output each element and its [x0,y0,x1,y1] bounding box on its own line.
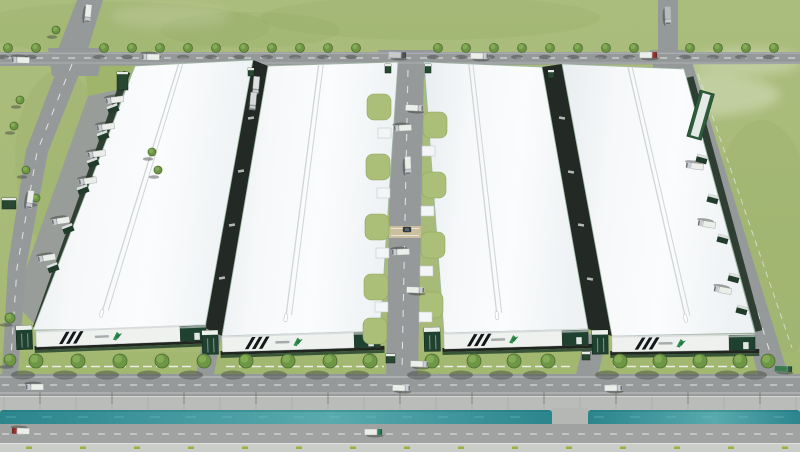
sidewalk-marking [80,447,86,450]
dock-pod [376,248,389,258]
truck-trailer [470,53,483,59]
tree-highlight [30,355,38,363]
tree-highlight [654,355,662,363]
tree-shadow [511,55,523,59]
sidewalk-marking [350,447,356,450]
dock-pod [419,312,432,322]
truck-trailer [85,4,92,17]
tree-highlight [268,44,273,49]
dock-pod [421,206,434,216]
tree-highlight [468,355,476,363]
truck-trailer [665,6,671,19]
tree-highlight [686,44,691,49]
tree-shadow [679,55,691,59]
tree-highlight [462,44,467,49]
truck-trailer [399,125,412,132]
truck-windshield [394,126,395,131]
tree-highlight [574,44,579,49]
tree-highlight [240,355,248,363]
booth-roof [117,72,128,74]
end-section-door [194,333,200,340]
truck [390,246,409,255]
tree-highlight [155,167,159,171]
tree-shadow [261,55,273,59]
guard-booth [386,354,395,363]
truck-trailer [31,384,44,390]
tree-highlight [23,167,27,171]
truck-windshield [427,362,428,367]
grass-island [367,94,391,120]
truck-trailer [392,385,405,391]
guard-booth [385,64,391,73]
tree-shadow [205,55,217,59]
tree-shadow [121,55,133,59]
tree-shadow [263,371,287,380]
canal-water [588,410,800,426]
tree-highlight [434,44,439,49]
truck-trailer [410,361,423,367]
tree-shadow [743,371,767,380]
tree-highlight [184,44,189,49]
truck [365,429,384,437]
truck-trailer [17,57,30,63]
warehouse-3-ridge-vent [495,311,499,319]
tower-mullion [603,338,604,352]
end-section-door [743,342,749,349]
guard-booth [2,198,16,209]
cloud-haze [110,4,230,28]
dock-pod [375,302,388,312]
tree-highlight [742,44,747,49]
tree-highlight [546,44,551,49]
sidewalk-marking [26,447,32,450]
tree-shadow [635,371,659,380]
industrial-park-aerial-view [0,0,800,452]
corner-tower-cap [424,327,440,332]
dock-pod [422,146,435,156]
truck-windshield [405,53,406,58]
truck-trailer [17,428,30,434]
truck-trailer [605,385,618,391]
tree-shadow [47,35,57,39]
tree-highlight [11,123,15,127]
dock-pod [377,188,390,198]
truck-windshield [421,106,422,111]
truck [140,51,159,60]
booth-roof [2,198,16,200]
truck-windshield [666,23,671,24]
tree-highlight [296,44,301,49]
tree-highlight [212,44,217,49]
tree-highlight [198,355,206,363]
guard-booth [248,68,254,76]
truck-windshield [487,54,488,59]
car [403,227,411,232]
tree-highlight [770,44,775,49]
tree-highlight [240,44,245,49]
aerial-render-canvas [0,0,800,452]
tree-highlight [156,355,164,363]
truck-windshield [142,54,143,59]
truck-windshield [392,250,393,255]
truck-windshield [12,428,13,433]
sidewalk-marking [782,447,788,450]
sidewalk-marking [566,447,572,450]
truck-trailer [405,156,411,169]
tree-shadow [595,55,607,59]
tree-shadow [289,55,301,59]
tree-shadow [177,55,189,59]
booth-roof [386,354,395,356]
truck-windshield [12,57,13,62]
tree-shadow [179,371,203,380]
tree-shadow [11,371,35,380]
tree-highlight [324,355,332,363]
booth-roof [548,70,554,72]
tree-shadow [149,175,159,179]
truck-windshield [423,288,424,293]
truck-trailer [388,52,401,58]
grass-island [365,214,389,240]
tree-highlight [282,355,290,363]
truck [392,122,411,131]
truck [25,382,44,390]
guard-booth [582,352,590,360]
grass-island [366,154,390,180]
grass-island [363,318,387,344]
tree-highlight [156,44,161,49]
truck-trailer [250,92,257,105]
tree-shadow [455,55,467,59]
tree-shadow [707,55,719,59]
truck-trailer [365,429,378,435]
grass-island [423,112,447,138]
tree-highlight [364,355,372,363]
sidewalk-marking [296,447,302,450]
dock-pod [420,266,433,276]
tree-shadow [143,157,153,161]
dock-pod [378,128,391,138]
tree-highlight [149,149,153,153]
sidewalk-marking [620,447,626,450]
truck-windshield [656,53,657,58]
tree-highlight [542,355,550,363]
tree-shadow [317,55,329,59]
tree-shadow [11,105,21,109]
sidewalk-marking [404,447,410,450]
tree-highlight [762,355,770,363]
tree-highlight [352,44,357,49]
tree-highlight [694,355,702,363]
tree-highlight [128,44,133,49]
tree-shadow [95,371,119,380]
grass-island [421,232,445,258]
sidewalk-marking [242,447,248,450]
truck-windshield [409,386,410,391]
tree-shadow [489,371,513,380]
tree-highlight [614,355,622,363]
tree-shadow [305,371,329,380]
tree-highlight [630,44,635,49]
truck-windshield [406,173,411,174]
grass-island [364,274,388,300]
tree-highlight [602,44,607,49]
tree-shadow [345,371,369,380]
tree-highlight [734,355,742,363]
tree-highlight [490,44,495,49]
corner-tower-cap [202,330,218,335]
truck [470,53,489,62]
tree-shadow [427,55,439,59]
truck [662,6,671,25]
truck-trailer [253,76,260,89]
booth-roof [248,68,254,70]
truck-trailer [406,287,419,293]
truck-windshield [791,367,792,372]
tree-highlight [714,44,719,49]
truck-trailer [691,163,704,170]
tree-highlight [32,44,37,49]
tree-shadow [5,131,15,135]
canal-water [0,410,552,426]
grass-island [422,172,446,198]
corner-tower-cap [16,325,32,330]
tree-shadow [675,371,699,380]
truck-trailer [147,54,160,60]
tree-shadow [0,323,13,327]
tree-shadow [233,55,245,59]
truck-trailer [640,52,653,58]
truck-trailer [405,105,418,112]
sidewalk-marking [458,447,464,450]
tree-highlight [53,27,57,31]
tree-shadow [595,371,619,380]
tree-highlight [6,314,12,320]
tree-shadow [567,55,579,59]
tree-shadow [137,371,161,380]
booth-roof [385,64,391,66]
booth-body [117,72,128,90]
tree-shadow [523,371,547,380]
truck-windshield [26,385,27,390]
guard-booth [425,64,431,73]
truck [605,385,624,393]
car-roof [405,228,409,231]
tree-highlight [518,44,523,49]
tree-highlight [5,355,12,362]
sidewalk-marking [674,447,680,450]
tree-highlight [508,355,516,363]
sidewalk-marking [512,447,518,450]
truck [402,156,411,175]
truck-trailer [397,249,410,255]
end-section-door [576,337,582,344]
tree-shadow [93,55,105,59]
sidewalk-marking [134,447,140,450]
booth-roof [425,64,431,66]
tree-shadow [345,55,357,59]
tree-shadow [17,175,27,179]
booth-roof [582,352,590,354]
guard-booth [548,70,554,78]
truck-windshield [621,386,622,391]
tree-highlight [114,355,122,363]
logo-text-bar [491,338,505,341]
tree-shadow [539,55,551,59]
sidewalk-marking [188,447,194,450]
corner-tower-cap [592,330,608,335]
tree-shadow [449,371,473,380]
tree-shadow [763,55,775,59]
tree-shadow [221,371,245,380]
tree-highlight [17,97,21,101]
tree-shadow [715,371,739,380]
tree-highlight [72,355,80,363]
end-section-trim [729,335,755,337]
guard-booth [117,72,128,90]
tree-shadow [623,55,635,59]
tree-shadow [407,371,431,380]
tree-shadow [735,55,747,59]
sidewalk-marking [728,447,734,450]
logo-text-bar [275,341,289,344]
tree-highlight [4,44,9,49]
tree-highlight [324,44,329,49]
truck [640,52,659,60]
truck-windshield [381,430,382,435]
warehouse-2-ridge-vent [284,314,288,322]
tower-mullion [597,338,598,352]
tree-shadow [53,371,77,380]
logo-text-bar [658,342,672,345]
tree-highlight [100,44,105,49]
truck-trailer [774,366,787,372]
